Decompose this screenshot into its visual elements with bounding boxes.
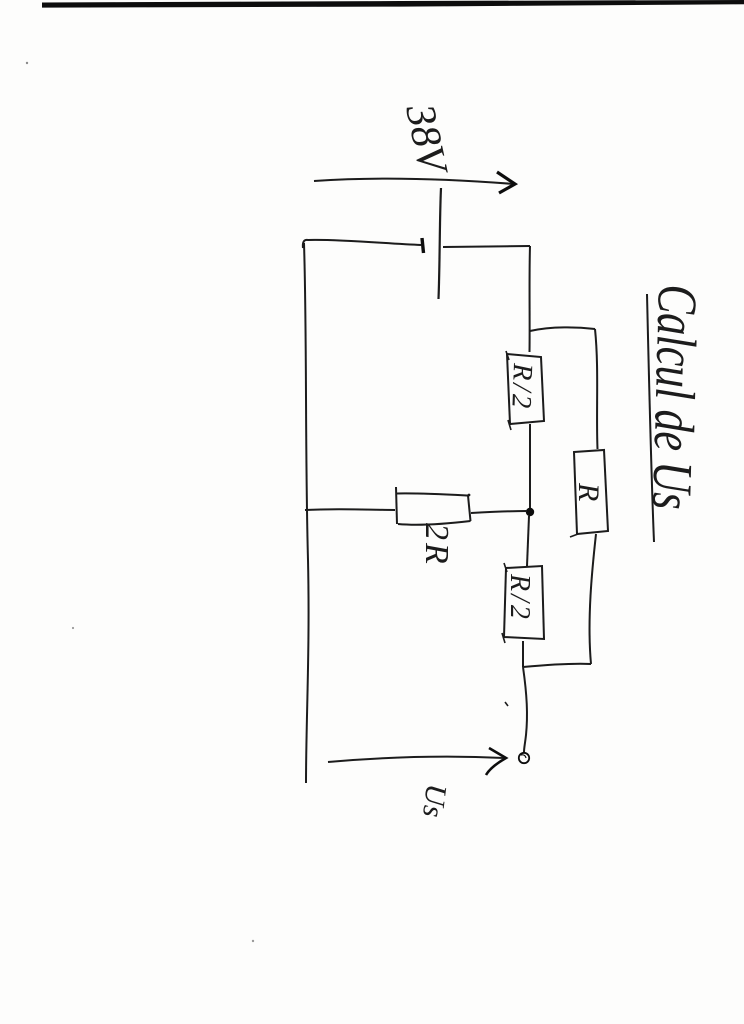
svg-text:Us: Us — [416, 782, 453, 819]
svg-text:R/2: R/2 — [504, 573, 535, 622]
svg-text:R: R — [572, 482, 605, 501]
svg-text:R/2: R/2 — [505, 362, 538, 412]
svg-text:2R: 2R — [418, 523, 455, 567]
